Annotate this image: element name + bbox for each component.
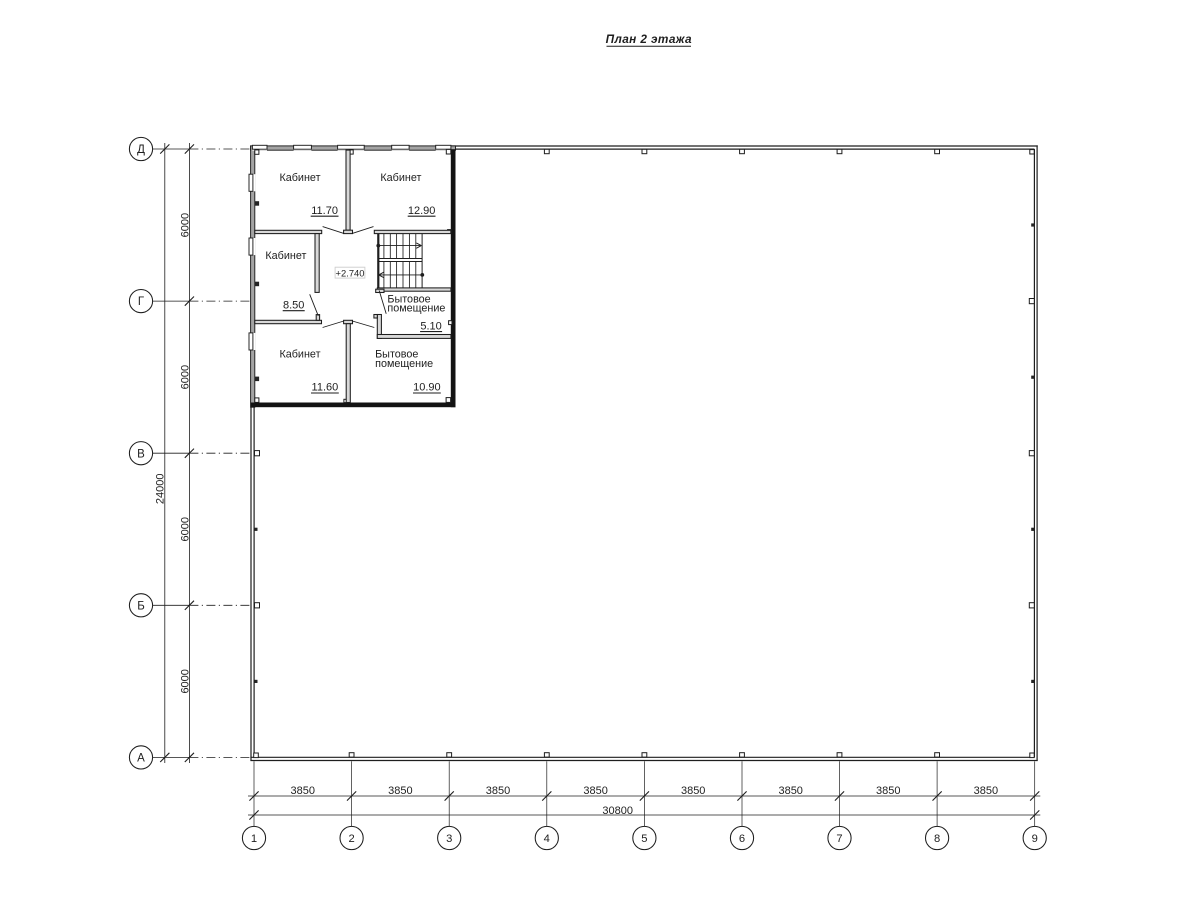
svg-text:5.10: 5.10 (420, 320, 441, 332)
svg-text:Кабинет: Кабинет (279, 172, 320, 184)
svg-text:Кабинет: Кабинет (265, 250, 306, 262)
svg-text:9: 9 (1032, 833, 1038, 845)
svg-text:7: 7 (836, 833, 842, 845)
svg-text:3850: 3850 (876, 785, 900, 797)
svg-text:3850: 3850 (486, 785, 510, 797)
svg-text:10.90: 10.90 (413, 382, 441, 394)
svg-text:11.60: 11.60 (312, 382, 339, 394)
svg-text:3850: 3850 (583, 785, 607, 797)
svg-text:А: А (137, 753, 145, 765)
svg-text:Кабинет: Кабинет (279, 348, 320, 360)
svg-text:8: 8 (934, 833, 940, 845)
svg-text:помещение: помещение (387, 303, 445, 315)
svg-text:Г: Г (138, 296, 145, 308)
svg-text:3850: 3850 (974, 785, 998, 797)
svg-text:12.90: 12.90 (408, 205, 436, 217)
svg-text:Кабинет: Кабинет (380, 172, 421, 184)
svg-text:3850: 3850 (778, 785, 802, 797)
svg-text:6: 6 (739, 833, 745, 845)
svg-text:План 2 этажа: План 2 этажа (606, 32, 692, 46)
svg-text:6000: 6000 (180, 213, 192, 237)
svg-text:3850: 3850 (291, 785, 315, 797)
svg-text:30800: 30800 (602, 805, 633, 817)
svg-text:1: 1 (251, 833, 257, 845)
svg-text:6000: 6000 (180, 517, 192, 541)
svg-text:6000: 6000 (180, 365, 192, 389)
svg-text:3: 3 (446, 833, 452, 845)
svg-text:Д: Д (137, 144, 145, 156)
svg-text:3850: 3850 (681, 785, 705, 797)
svg-text:+2.740: +2.740 (336, 267, 365, 278)
svg-text:Б: Б (137, 600, 145, 612)
svg-text:5: 5 (641, 833, 647, 845)
svg-text:6000: 6000 (180, 669, 192, 693)
svg-text:2: 2 (348, 833, 354, 845)
svg-text:11.70: 11.70 (311, 205, 338, 217)
svg-text:8.50: 8.50 (283, 299, 304, 311)
svg-text:24000: 24000 (155, 474, 167, 505)
svg-text:В: В (137, 448, 145, 460)
svg-text:3850: 3850 (388, 785, 412, 797)
svg-text:помещение: помещение (375, 358, 433, 370)
svg-text:4: 4 (544, 833, 550, 845)
